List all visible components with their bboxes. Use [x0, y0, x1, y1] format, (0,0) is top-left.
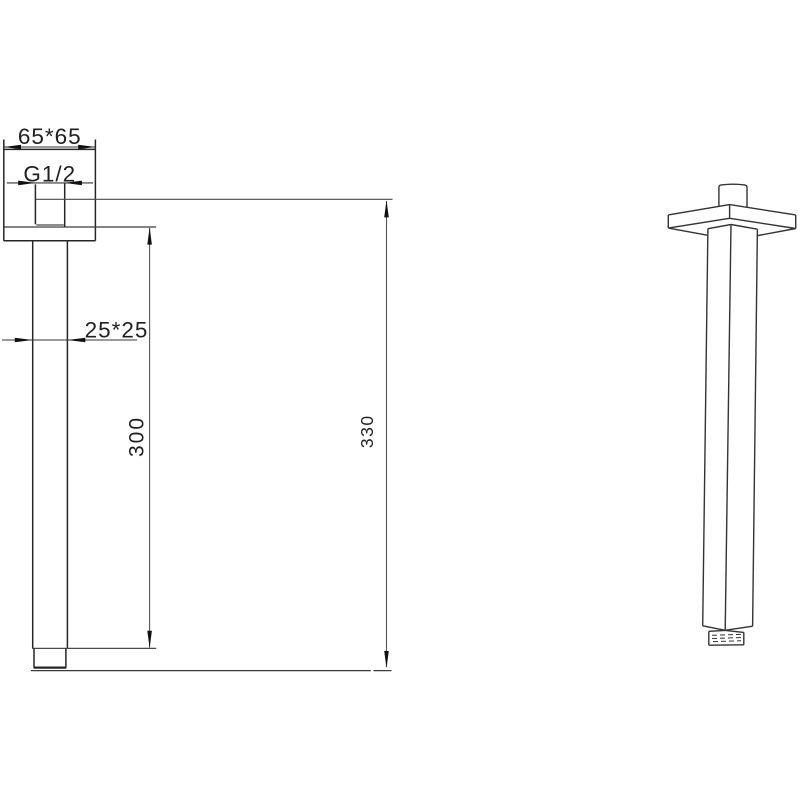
svg-text:65*65: 65*65 [18, 124, 82, 149]
svg-text:G1/2: G1/2 [23, 162, 76, 187]
svg-text:330: 330 [357, 414, 377, 448]
svg-text:25*25: 25*25 [85, 318, 149, 343]
svg-text:300: 300 [126, 416, 149, 457]
